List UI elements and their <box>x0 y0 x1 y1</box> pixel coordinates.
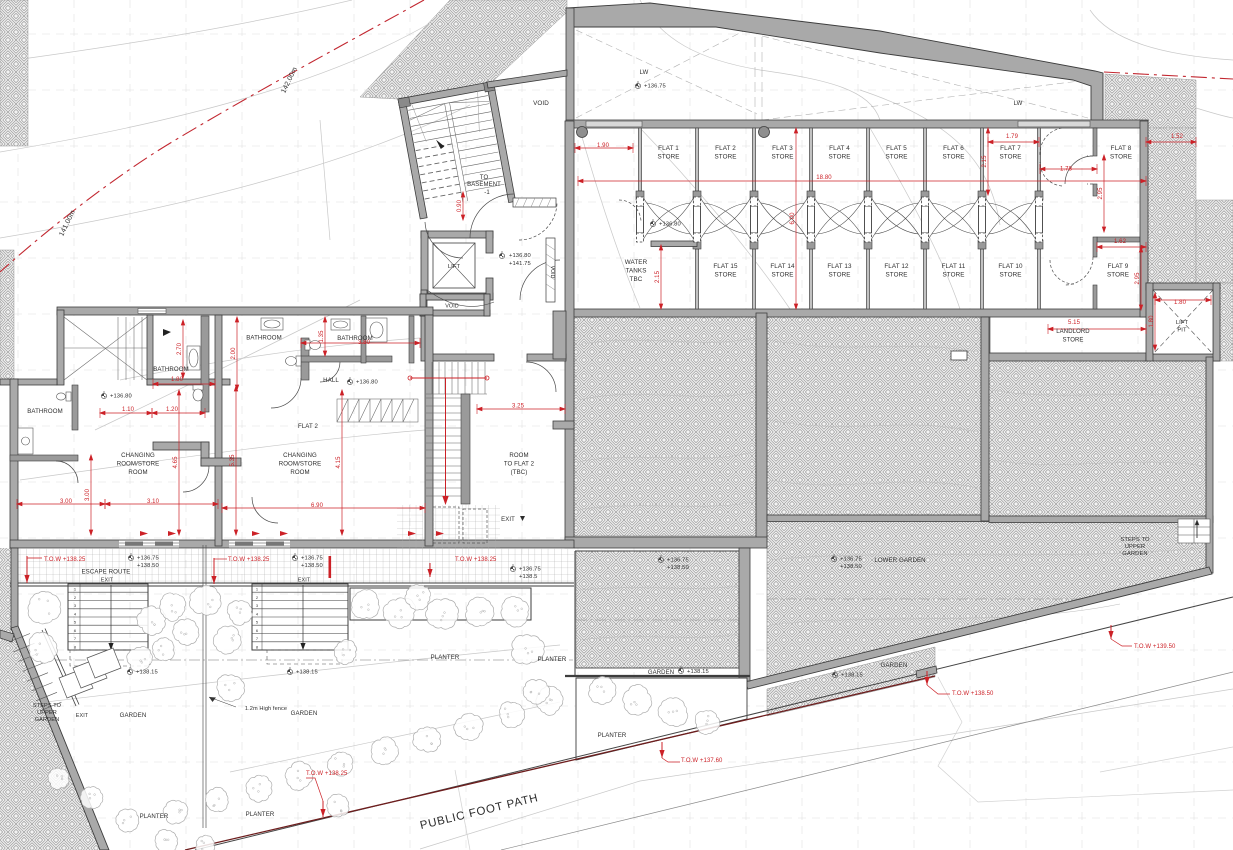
svg-text:STORE: STORE <box>999 154 1021 161</box>
svg-text:FLAT 12: FLAT 12 <box>884 263 909 270</box>
svg-text:+136.80: +136.80 <box>659 222 681 228</box>
svg-text:1.79: 1.79 <box>1006 134 1019 140</box>
svg-text:STORE: STORE <box>771 272 793 279</box>
svg-text:18.80: 18.80 <box>816 175 832 181</box>
svg-text:2.15: 2.15 <box>655 270 661 283</box>
svg-text:LIFT: LIFT <box>1176 320 1189 326</box>
svg-text:+138.50: +138.50 <box>840 564 862 570</box>
svg-text:UPPER: UPPER <box>37 710 57 716</box>
svg-text:3.00: 3.00 <box>85 488 91 501</box>
svg-text:STORE: STORE <box>885 154 907 161</box>
svg-text:1.62: 1.62 <box>1114 239 1127 245</box>
svg-text:FLAT 5: FLAT 5 <box>886 145 907 152</box>
svg-text:FLAT 15: FLAT 15 <box>713 263 738 270</box>
svg-text:LANDLORD: LANDLORD <box>1056 329 1090 335</box>
svg-text:CHANGING: CHANGING <box>121 452 155 459</box>
svg-text:FLAT 9: FLAT 9 <box>1108 263 1129 270</box>
svg-text:EXIT: EXIT <box>76 713 89 719</box>
svg-text:ROOM: ROOM <box>509 452 528 459</box>
svg-text:1.10: 1.10 <box>122 407 135 413</box>
svg-text:PIT: PIT <box>1177 328 1187 334</box>
svg-text:FLAT 4: FLAT 4 <box>829 145 850 152</box>
svg-text:+136.75: +136.75 <box>644 84 666 90</box>
svg-text:BATHROOM: BATHROOM <box>246 335 282 342</box>
svg-text:1.2m High fence: 1.2m High fence <box>245 706 287 712</box>
svg-text:T.O.W +138.25: T.O.W +138.25 <box>306 771 348 777</box>
svg-text:+141.75: +141.75 <box>509 261 531 267</box>
svg-text:4.65: 4.65 <box>173 456 179 469</box>
svg-text:T.O.W +137.60: T.O.W +137.60 <box>681 758 723 764</box>
svg-text:FLAT 7: FLAT 7 <box>1000 145 1021 152</box>
svg-text:TO FLAT 2: TO FLAT 2 <box>504 461 535 468</box>
svg-text:STORE: STORE <box>714 272 736 279</box>
svg-text:3.25: 3.25 <box>512 404 525 410</box>
svg-text:ESCAPE ROUTE: ESCAPE ROUTE <box>82 569 131 576</box>
svg-text:5.15: 5.15 <box>1068 320 1081 326</box>
svg-text:+136.75: +136.75 <box>519 567 541 573</box>
svg-text:BATHROOM: BATHROOM <box>153 366 189 373</box>
svg-text:2.95: 2.95 <box>1098 187 1104 200</box>
svg-text:ROOM: ROOM <box>128 469 147 476</box>
svg-text:+136.80: +136.80 <box>110 394 132 400</box>
svg-text:STORE: STORE <box>657 154 679 161</box>
svg-text:PLANTER: PLANTER <box>598 732 627 739</box>
svg-text:FLAT 11: FLAT 11 <box>942 263 966 270</box>
svg-text:ROOM/STORE: ROOM/STORE <box>117 461 160 468</box>
svg-text:PLANTER: PLANTER <box>431 654 460 661</box>
svg-text:FLAT 13: FLAT 13 <box>827 263 852 270</box>
svg-text:T.O.W +138.25: T.O.W +138.25 <box>44 557 86 563</box>
svg-text:1.52: 1.52 <box>1171 134 1184 140</box>
svg-text:+138.15: +138.15 <box>687 669 709 675</box>
svg-text:STORE: STORE <box>1062 338 1083 344</box>
svg-text:+138.15: +138.15 <box>136 670 158 676</box>
svg-text:VOID: VOID <box>549 266 555 279</box>
svg-text:GARDEN: GARDEN <box>1122 551 1147 557</box>
svg-text:1.78: 1.78 <box>1060 167 1073 173</box>
svg-text:GARDEN: GARDEN <box>648 670 674 676</box>
svg-text:2.15: 2.15 <box>982 155 988 168</box>
svg-text:ROOM: ROOM <box>290 469 309 476</box>
svg-text:FLAT 8: FLAT 8 <box>1111 145 1132 152</box>
svg-text:3.00: 3.00 <box>60 499 73 505</box>
svg-text:STORE: STORE <box>771 154 793 161</box>
svg-text:STEPS TO: STEPS TO <box>33 703 62 709</box>
svg-text:+136.75: +136.75 <box>667 558 689 564</box>
svg-text:STORE: STORE <box>942 154 964 161</box>
svg-text:2.00: 2.00 <box>231 347 237 360</box>
svg-text:CHANGING: CHANGING <box>283 452 317 459</box>
svg-text:PLANTER: PLANTER <box>538 656 567 663</box>
svg-text:BASEMENT: BASEMENT <box>467 182 501 188</box>
svg-text:1.80: 1.80 <box>1149 315 1155 328</box>
svg-text:2.95: 2.95 <box>1135 272 1141 285</box>
svg-text:STORE: STORE <box>999 272 1021 279</box>
svg-text:1.20: 1.20 <box>166 407 179 413</box>
svg-text:+138.15: +138.15 <box>841 673 863 679</box>
svg-text:WATER: WATER <box>625 259 648 266</box>
svg-text:TBC: TBC <box>630 276 643 283</box>
svg-text:6.00: 6.00 <box>790 212 796 225</box>
svg-text:+136.75: +136.75 <box>840 557 862 563</box>
svg-text:FLAT 3: FLAT 3 <box>772 145 793 152</box>
svg-text:+136.80: +136.80 <box>509 253 531 259</box>
svg-text:LOWER GARDEN: LOWER GARDEN <box>874 557 925 564</box>
svg-text:+138.50: +138.50 <box>137 563 159 569</box>
svg-text:STORE: STORE <box>828 154 850 161</box>
svg-text:+138.50: +138.50 <box>667 565 689 571</box>
svg-text:+136.80: +136.80 <box>356 380 378 386</box>
svg-text:ROOM/STORE: ROOM/STORE <box>279 461 322 468</box>
svg-text:FLAT 6: FLAT 6 <box>943 145 964 152</box>
svg-text:EXIT: EXIT <box>101 578 114 584</box>
svg-text:1.80: 1.80 <box>171 377 184 383</box>
svg-text:LW: LW <box>1014 101 1023 107</box>
svg-text:STORE: STORE <box>1110 154 1132 161</box>
svg-text:+136.75: +136.75 <box>137 556 159 562</box>
svg-text:STORE: STORE <box>828 272 850 279</box>
svg-text:STORE: STORE <box>885 272 907 279</box>
svg-text:-1: -1 <box>484 190 490 196</box>
svg-text:1.90: 1.90 <box>597 143 610 149</box>
svg-text:1.35: 1.35 <box>319 330 325 343</box>
svg-text:4.15: 4.15 <box>336 456 342 469</box>
svg-text:+136.75: +136.75 <box>301 556 323 562</box>
svg-text:PLANTER: PLANTER <box>140 813 169 820</box>
svg-text:2.70: 2.70 <box>177 342 183 355</box>
svg-text:+138.15: +138.15 <box>296 670 318 676</box>
svg-text:FLAT 10: FLAT 10 <box>998 263 1023 270</box>
svg-text:BATHROOM: BATHROOM <box>337 335 373 342</box>
svg-text:T.O.W +138.25: T.O.W +138.25 <box>228 557 270 563</box>
svg-text:TO: TO <box>480 175 489 181</box>
svg-text:TANKS: TANKS <box>625 268 646 275</box>
svg-text:FLAT 2: FLAT 2 <box>298 423 319 430</box>
svg-text:GARDEN: GARDEN <box>120 712 147 719</box>
svg-text:GARDEN: GARDEN <box>35 717 60 723</box>
svg-text:FLAT 2: FLAT 2 <box>715 145 736 152</box>
svg-text:0.90: 0.90 <box>457 199 463 212</box>
svg-text:+138.50: +138.50 <box>301 563 323 569</box>
svg-text:(TBC): (TBC) <box>511 469 528 476</box>
svg-text:1.80: 1.80 <box>1174 300 1187 306</box>
svg-text:T.O.W +138.25: T.O.W +138.25 <box>455 557 497 563</box>
svg-text:GARDEN: GARDEN <box>291 710 318 717</box>
svg-text:FLAT 1: FLAT 1 <box>658 145 679 152</box>
svg-text:VOID: VOID <box>533 100 549 107</box>
svg-text:HALL: HALL <box>323 377 339 384</box>
svg-text:3.10: 3.10 <box>147 499 160 505</box>
svg-text:PLANTER: PLANTER <box>246 811 275 818</box>
svg-text:FLAT 14: FLAT 14 <box>770 263 795 270</box>
svg-text:LIFT: LIFT <box>448 264 461 270</box>
svg-text:STORE: STORE <box>714 154 736 161</box>
svg-text:LW: LW <box>640 70 649 76</box>
svg-text:STEPS TO: STEPS TO <box>1120 537 1150 543</box>
svg-text:STORE: STORE <box>1107 272 1129 279</box>
svg-text:GARDEN: GARDEN <box>881 662 908 669</box>
svg-text:6.90: 6.90 <box>311 503 324 509</box>
svg-text:BATHROOM: BATHROOM <box>27 408 63 415</box>
svg-text:T.O.W +139.50: T.O.W +139.50 <box>1134 644 1176 650</box>
svg-text:+138.5: +138.5 <box>519 574 538 580</box>
svg-text:EXIT: EXIT <box>298 578 311 584</box>
svg-text:T.O.W +138.50: T.O.W +138.50 <box>952 691 994 697</box>
svg-text:STORE: STORE <box>942 272 964 279</box>
svg-text:UPPER: UPPER <box>1125 544 1145 550</box>
svg-text:5.35: 5.35 <box>230 454 236 467</box>
svg-text:EXIT: EXIT <box>501 517 515 523</box>
